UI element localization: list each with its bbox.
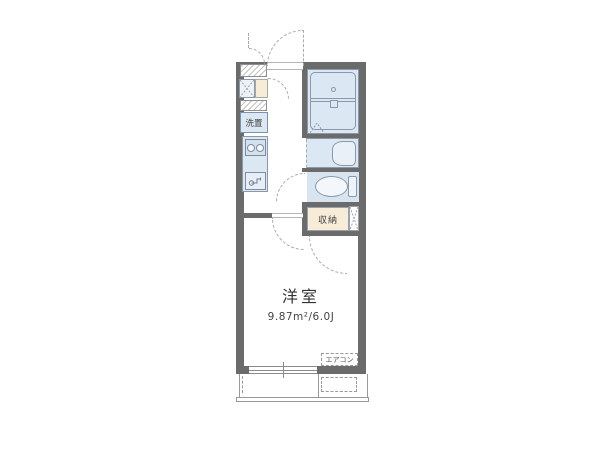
washbasin-icon (332, 141, 356, 166)
bathtub-handle (330, 100, 338, 108)
pipe-shaft-box (349, 206, 359, 231)
genkan-floor (255, 79, 268, 98)
x-cross-icon (240, 80, 254, 97)
storage-closet: 収納 (307, 207, 349, 231)
entrance-small-door-swing-arc (249, 48, 265, 64)
toilet-room (307, 172, 359, 202)
wall-bottom-right (317, 366, 366, 374)
balcony-rail (236, 397, 369, 402)
entrance-door-leaf (303, 30, 304, 66)
bathtub-drain-icon (331, 87, 336, 92)
stove-burner-icon (247, 144, 255, 152)
aircon-marker: エアコン (321, 353, 358, 366)
shoe-cabinet-upper (240, 64, 267, 77)
wall-right (358, 62, 366, 374)
balcony-right-edge (367, 374, 368, 398)
washer-space-label: 洗置 (245, 117, 262, 129)
outdoor-unit-space (321, 377, 357, 392)
toilet-bowl-icon (315, 176, 348, 197)
stove (245, 139, 266, 156)
bath-folding-door-icon (310, 123, 324, 133)
balcony-partition-dashes (242, 376, 243, 393)
floorplan-canvas: 洗置 収納 (0, 0, 600, 450)
entrance-shaft-box (239, 79, 255, 98)
kitchen-sink (245, 172, 266, 190)
entrance-door-swing-arc (267, 30, 303, 66)
stove-burner-icon (256, 144, 264, 152)
window-center-tick (283, 362, 284, 378)
room-label-block: 洋室 9.87m²/6.0J (243, 283, 359, 323)
room-size-label: 9.87m²/6.0J (243, 311, 359, 323)
entrance-small-door-leaf (248, 33, 249, 48)
bathroom (307, 69, 359, 134)
genkan-door-swing-arc (268, 78, 289, 99)
washbasin-room-opening (306, 139, 307, 168)
faucet-icon (248, 175, 263, 187)
toilet-door-swing-arc (276, 173, 305, 202)
storage-door-swing-arc (309, 236, 347, 274)
washbasin-room (306, 138, 359, 168)
shoe-cabinet-lower (240, 100, 267, 111)
wall-hall-room-divider (236, 213, 273, 218)
washer-space: 洗置 (240, 112, 268, 133)
balcony-divider-line (318, 374, 319, 398)
wall-bottom-left (236, 366, 249, 374)
aircon-label: エアコン (326, 355, 354, 365)
room-door-swing-arc (272, 218, 304, 250)
room-name-label: 洋室 (243, 283, 359, 307)
balcony-left-edge (239, 374, 240, 398)
storage-label: 収納 (318, 213, 338, 226)
x-cross-icon (350, 207, 358, 230)
toilet-tank (348, 176, 357, 197)
